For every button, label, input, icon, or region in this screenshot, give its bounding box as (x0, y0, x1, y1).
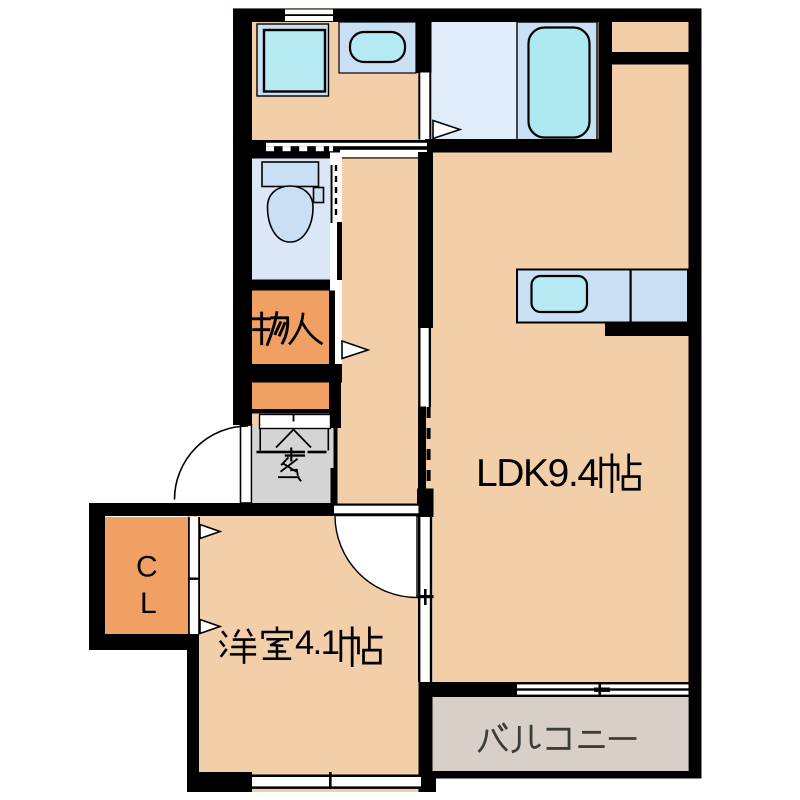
svg-text:4.1: 4.1 (295, 624, 339, 662)
svg-text:LDK9.4: LDK9.4 (476, 452, 598, 495)
svg-text:L: L (140, 587, 157, 620)
svg-text:C: C (136, 551, 158, 584)
